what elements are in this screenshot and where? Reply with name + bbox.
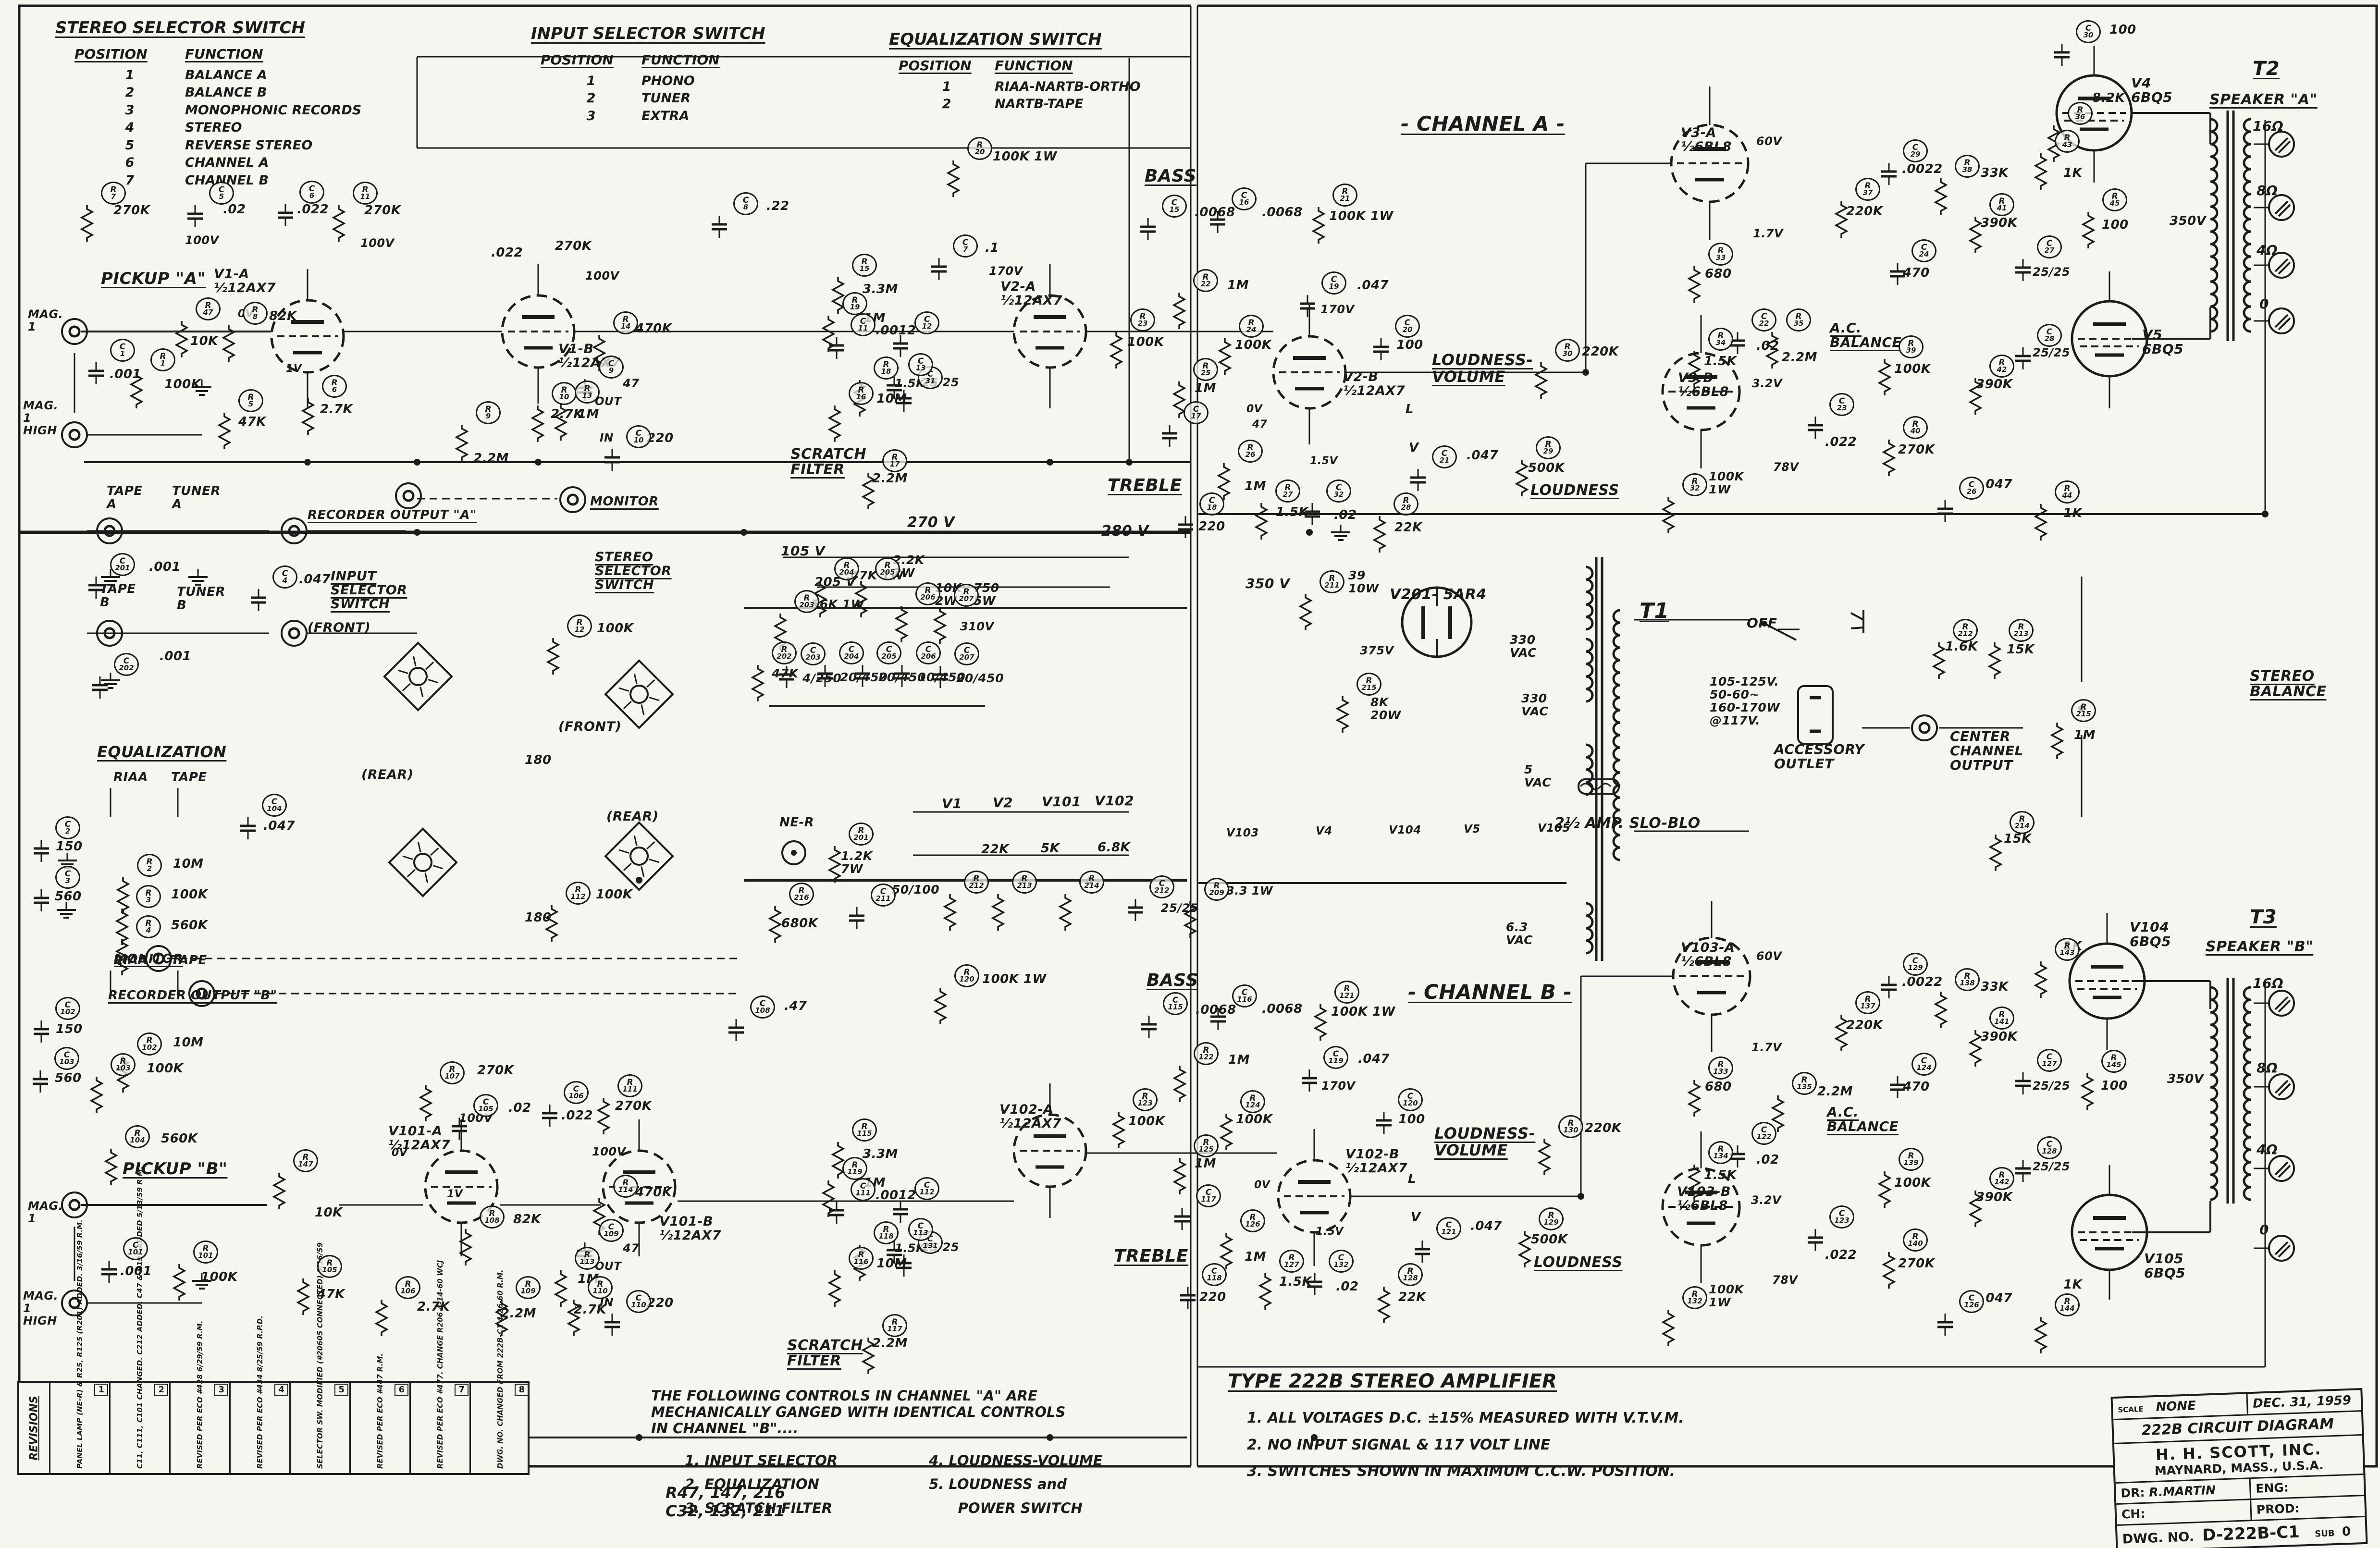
label-c124-val: 470 <box>1903 1080 1930 1093</box>
label-mag1h-b: MAG. 1 HIGH <box>23 1290 58 1327</box>
ref-C28: C28 <box>2037 324 2062 347</box>
glyph <box>1879 1171 1890 1208</box>
label-v104: V104 6BQ5 <box>2130 920 2171 949</box>
ref-R124: R124 <box>1240 1090 1265 1113</box>
wire <box>2279 1000 2290 1012</box>
ref-text: 138 <box>1960 980 1974 987</box>
revision-number: 1 <box>94 1384 108 1396</box>
label-r114-val: 470K <box>635 1186 672 1199</box>
ref-C109: C109 <box>599 1219 624 1242</box>
glyph <box>1836 1015 1847 1051</box>
ref-text: 44 <box>2062 492 2072 499</box>
label-r21-val: 100K 1W <box>1329 209 1393 223</box>
glyph <box>555 1270 566 1307</box>
label-v201: V201- 5AR4 <box>1390 587 1487 602</box>
label-r43-val: 1K <box>2063 166 2082 180</box>
ref-R111: R111 <box>617 1074 642 1097</box>
label-sf-out-b: OUT <box>595 1261 621 1273</box>
ref-R214: R214 <box>1079 871 1104 894</box>
ref-text: 115 <box>857 1130 872 1137</box>
glyph <box>1174 381 1184 418</box>
label-v101b-100v: 100V <box>592 1146 626 1158</box>
glyph <box>91 1077 102 1113</box>
glyph <box>2035 961 2046 998</box>
revision-text: DWG. NO. CHANGED FROM 222B-C1 4-26-60 R.… <box>496 1387 505 1469</box>
ref-C32: C32 <box>1326 479 1351 503</box>
ref-C205: C205 <box>876 641 901 664</box>
ref-text: 204 <box>844 653 859 660</box>
ref-text: 43 <box>2062 142 2072 148</box>
ref-text: 35 <box>1794 320 1804 327</box>
label-c22-val: .02 <box>1756 339 1779 353</box>
label-r201-val: 1.2K 7W <box>841 849 873 875</box>
ref-text: 124 <box>1916 1065 1931 1071</box>
ref-text: 145 <box>2106 1062 2121 1069</box>
junction-dot <box>740 529 747 536</box>
ref-text: 18 <box>881 369 891 375</box>
ref-text: 10 <box>634 437 644 444</box>
glyph <box>1337 696 1348 733</box>
label-r28-val: 22K <box>1394 521 1422 534</box>
glyph <box>174 1264 185 1301</box>
label-c18-val: 220 <box>1198 520 1225 533</box>
ganged-line3: IN CHANNEL "B".... <box>651 1420 1204 1437</box>
equalization-title: EQUALIZATION SWITCH <box>889 30 1187 49</box>
glyph <box>1221 1233 1232 1269</box>
label-tape-a: TAPE A <box>107 484 143 511</box>
switch-table-row: 3EXTRA <box>531 108 781 125</box>
ref-R135: R135 <box>1792 1072 1817 1095</box>
jack-outer <box>396 483 421 508</box>
revision-cell-4: REVISED PER ECO #434 8/25/59 R.P.D.4 <box>231 1383 291 1473</box>
glyph <box>376 1300 387 1336</box>
label-v3a: V3-A ½6BL8 <box>1681 126 1732 154</box>
ref-R215: R215 <box>2071 699 2096 722</box>
revision-text: PANEL LAMP (NE-R) & R25, R125 (R201) ADD… <box>75 1387 84 1469</box>
label-mag1-a: MAG. 1 <box>28 308 63 333</box>
label-r116-val: 10M <box>876 1257 907 1270</box>
glyph <box>823 1180 834 1217</box>
ref-R202: R202 <box>772 641 797 664</box>
label-c3-val: 560 <box>55 890 82 903</box>
ref-text: 120 <box>1403 1100 1418 1107</box>
label-r38-val: 33K <box>1981 166 2009 180</box>
ref-text: 5 <box>248 401 253 408</box>
glyph <box>833 1142 843 1179</box>
stereo-selector-table: STEREO SELECTOR SWITCH POSITION FUNCTION… <box>55 18 392 189</box>
label-tuner-a: TUNER A <box>172 484 221 511</box>
label-c4-val: .047 <box>299 573 331 586</box>
function-cell: BALANCE A <box>185 67 267 84</box>
ref-R134: R134 <box>1708 1141 1733 1164</box>
label-r8-val: 82K <box>269 309 297 323</box>
label-r111-val: 270K <box>615 1099 652 1113</box>
ganged-right-list: 4. LOUDNESS-VOLUME5. LOUDNESS and POWER … <box>929 1449 1102 1520</box>
ref-text: 19 <box>1329 283 1339 290</box>
ganged-line2: MECHANICALLY GANGED WITH IDENTICAL CONTR… <box>651 1404 1204 1420</box>
ref-text: 106 <box>400 1288 415 1295</box>
wire <box>431 848 438 855</box>
label-r42-val: 390K <box>1976 378 2012 391</box>
ref-text: 26 <box>1967 489 1977 495</box>
label-t3-0: 0 <box>2259 1223 2269 1237</box>
revision-number: 7 <box>455 1384 469 1396</box>
revision-cell-7: REVISED PER ECO #477. CHANGE R206 4-14-6… <box>411 1383 471 1473</box>
ref-text: 108 <box>755 1007 770 1014</box>
glyph <box>833 277 843 314</box>
revision-number: 4 <box>274 1384 288 1396</box>
label-c26-val: .047 <box>1981 478 2012 491</box>
ref-R24: R24 <box>1239 315 1264 338</box>
switch-table-row: 1PHONO <box>531 73 781 90</box>
ref-text: 102 <box>142 1044 157 1051</box>
input-selector-title: INPUT SELECTOR SWITCH <box>531 24 781 43</box>
label-r37-val: 220K <box>1846 205 1883 218</box>
label-c16-val: .0068 <box>1262 206 1303 219</box>
label-r127-val: 1.5K <box>1279 1275 1312 1289</box>
glyph <box>2210 119 2217 332</box>
label-c203-val: 4/250 <box>802 672 841 685</box>
ref-R6: R6 <box>322 375 347 398</box>
revision-text: REVISED PER ECO #447 R.M. <box>376 1387 384 1469</box>
ref-R212: R212 <box>1953 619 1978 642</box>
ref-text: 28 <box>2045 336 2055 343</box>
ref-text: 22 <box>1759 320 1769 327</box>
label-r101-val: 100K <box>201 1270 237 1284</box>
label-c120-val: 100 <box>1398 1113 1425 1126</box>
ref-text: 6 <box>332 387 337 393</box>
ref-text: 110 <box>592 1288 607 1295</box>
label-r115-val: 3.3M <box>863 1147 898 1161</box>
label-lv-l-b: L <box>1408 1172 1416 1186</box>
ref-text: 119 <box>847 1169 862 1176</box>
label-loudness-b: LOUDNESS <box>1534 1255 1623 1270</box>
ref-C103: C103 <box>54 1047 79 1070</box>
col-position: POSITION <box>541 52 641 68</box>
ref-text: 206 <box>920 594 935 601</box>
prod-label: PROD: <box>2250 1496 2365 1520</box>
ref-text: 216 <box>794 895 809 901</box>
label-v102b-15v: 1.5V <box>1316 1226 1344 1238</box>
position-cell: 4 <box>74 119 185 136</box>
label-rail-350: 350 V <box>1245 577 1290 591</box>
ref-text: 5 <box>219 194 224 200</box>
ref-text: 111 <box>855 1190 870 1197</box>
label-c8-val: .22 <box>766 199 789 213</box>
ref-C122: C122 <box>1751 1122 1776 1145</box>
glyph <box>118 877 128 914</box>
ref-C15: C15 <box>1162 195 1187 218</box>
ref-R15: R15 <box>852 254 877 277</box>
ref-C26: C26 <box>1959 477 1984 500</box>
label-r-v1b-val: 270K <box>555 239 592 253</box>
ref-text: 127 <box>2042 1061 2057 1068</box>
ref-R105: R105 <box>317 1255 342 1278</box>
ref-C112: C112 <box>914 1177 939 1200</box>
label-r142-val: 390K <box>1976 1191 2012 1204</box>
ref-text: 119 <box>1328 1058 1343 1065</box>
label-lv-l-a: L <box>1406 403 1414 416</box>
ref-R39: R39 <box>1899 335 1924 358</box>
ref-text: 32 <box>1690 485 1700 492</box>
ref-text: 131 <box>923 1243 937 1250</box>
ref-text: 14 <box>621 323 631 330</box>
ref-text: 6 <box>309 193 314 199</box>
ref-C204: C204 <box>839 641 864 664</box>
ref-C2: C2 <box>55 816 80 839</box>
ref-R204: R204 <box>834 557 859 580</box>
label-r30-val: 220K <box>1582 345 1618 358</box>
ref-R126: R126 <box>1240 1209 1265 1232</box>
wire <box>403 684 410 691</box>
ref-C101: C101 <box>123 1237 148 1260</box>
label-t1-330b: 330 VAC <box>1521 692 1548 718</box>
ref-text: 20 <box>975 149 985 156</box>
label-riaa-b: RIAA <box>113 954 148 967</box>
ref-R109: R109 <box>516 1276 541 1299</box>
junction-dot <box>414 459 420 466</box>
label-pickup-a: PICKUP "A" <box>101 270 206 288</box>
ref-C121: C121 <box>1436 1217 1461 1240</box>
ref-C27: C27 <box>2037 235 2062 258</box>
ref-R118: R118 <box>874 1221 899 1244</box>
ref-C16: C16 <box>1232 187 1257 210</box>
ref-C1: C1 <box>110 339 135 362</box>
label-c119-val: .047 <box>1358 1052 1390 1066</box>
label-r33-val: 680 <box>1705 267 1732 281</box>
ref-C207: C207 <box>954 642 979 665</box>
switch-table-row: 4STEREO <box>55 119 392 136</box>
ref-text: 124 <box>1245 1102 1260 1109</box>
label-channel-a: - CHANNEL A - <box>1401 113 1565 135</box>
glyph <box>823 316 834 352</box>
label-v2b-0v: 0V <box>1246 404 1262 415</box>
position-cell: 2 <box>541 90 641 107</box>
revision-cell-6: REVISED PER ECO #447 R.M.6 <box>351 1383 411 1473</box>
col-position: POSITION <box>74 46 185 62</box>
ref-C115: C115 <box>1163 992 1188 1015</box>
label-r102-val: 10M <box>173 1036 204 1049</box>
ref-text: 113 <box>913 1230 928 1237</box>
ref-text: 38 <box>1962 167 1973 173</box>
ref-C11: C11 <box>851 313 876 336</box>
ref-text: 37 <box>1863 190 1873 197</box>
wire <box>420 687 423 697</box>
ref-C102: C102 <box>55 997 80 1020</box>
revision-cell-3: REVISED PER ECO #428 6/29/59 R.M.3 <box>171 1383 231 1473</box>
ref-text: 114 <box>618 1187 633 1193</box>
glyph <box>1970 217 1981 253</box>
label-off: OFF <box>1747 616 1777 630</box>
label-r35-val: 2.2M <box>1782 351 1817 364</box>
ref-text: 116 <box>1237 996 1252 1003</box>
switch-table-row: 2BALANCE B <box>55 84 392 101</box>
label-c106-val: .022 <box>561 1109 593 1122</box>
label-v2a-170v: 170V <box>989 265 1023 278</box>
glyph <box>1536 362 1546 399</box>
glyph <box>2035 153 2046 190</box>
glyph <box>935 607 945 644</box>
ref-text: 112 <box>919 1189 934 1196</box>
ref-text: 8 <box>743 204 748 211</box>
glyph <box>1663 1310 1674 1346</box>
switch-table-row: 3MONOPHONIC RECORDS <box>55 102 392 119</box>
dwg-label: DWG. NO. <box>2122 1529 2194 1547</box>
label-c108-val: .47 <box>784 999 807 1013</box>
glyph <box>829 405 840 442</box>
ref-text: 45 <box>2110 200 2120 207</box>
wire <box>407 870 415 877</box>
jack-outer <box>282 621 307 646</box>
jack-inner <box>289 628 299 638</box>
ref-C105: C105 <box>473 1094 498 1117</box>
ref-R9: R9 <box>476 401 501 424</box>
label-c30-val: 100 <box>2109 23 2136 37</box>
label-r107-val: 270K <box>477 1064 514 1077</box>
ref-text: 23 <box>1837 405 1847 412</box>
label-c103-val: 560 <box>55 1071 82 1085</box>
label-t2-8: 8Ω <box>2257 184 2278 198</box>
wire <box>641 866 644 876</box>
label-r139-val: 100K <box>1894 1176 1931 1190</box>
label-c28-val: 25/25 <box>2033 347 2070 359</box>
wire <box>403 856 413 860</box>
revision-cell-8: DWG. NO. CHANGED FROM 222B-C1 4-26-60 R.… <box>471 1383 530 1473</box>
ref-R47: R47 <box>196 297 221 320</box>
label-htr-v103: V103 <box>1226 827 1259 839</box>
label-mag1-b: MAG. 1 <box>28 1200 63 1225</box>
glyph <box>1060 894 1071 931</box>
label-input-selector-switch: INPUT SELECTOR SWITCH <box>331 569 407 611</box>
label-r130-val: 220K <box>1585 1121 1621 1135</box>
wire <box>624 701 631 709</box>
label-r45-val: 100 <box>2102 218 2129 232</box>
label-r108-val: 82K <box>513 1213 541 1226</box>
ref-C12: C12 <box>914 311 939 334</box>
ref-C212: C212 <box>1149 875 1174 898</box>
label-stereo-front: (FRONT) <box>558 720 621 734</box>
ref-text: 203 <box>805 654 820 661</box>
ref-R23: R23 <box>1130 308 1155 332</box>
ref-C201: C201 <box>110 553 135 576</box>
glyph <box>456 425 467 461</box>
label-v103a-17v: 1.7V <box>1751 1042 1782 1054</box>
label-c7-val: .1 <box>985 241 999 255</box>
ref-text: 214 <box>1084 883 1099 889</box>
ref-text: 133 <box>1713 1069 1728 1075</box>
ref-C129: C129 <box>1903 953 1928 976</box>
label-r215-val: 1M <box>2074 728 2096 742</box>
label-r24-val: 100K <box>1235 338 1271 352</box>
ref-text: 103 <box>115 1065 130 1072</box>
label-htr-v104: V104 <box>1389 824 1421 836</box>
revision-number: 3 <box>214 1384 228 1396</box>
label-v105: V105 6BQ5 <box>2144 1252 2185 1280</box>
label-v103b: V103-B ½6BL8 <box>1677 1185 1731 1213</box>
ref-text: 139 <box>1903 1160 1918 1167</box>
wire <box>2275 1081 2288 1093</box>
ref-C9: C9 <box>599 356 624 379</box>
ref-text: 4 <box>283 577 287 584</box>
ref-C19: C19 <box>1321 271 1346 295</box>
label-v103b-32v: 3.2V <box>1751 1194 1781 1207</box>
label-r145-val: 100 <box>2101 1079 2128 1093</box>
ref-text: 113 <box>580 1259 594 1265</box>
glyph <box>333 205 344 242</box>
ref-text: 17 <box>1191 413 1201 420</box>
wire <box>433 866 443 869</box>
ref-C117: C117 <box>1196 1184 1221 1207</box>
label-c15-val: .0068 <box>1195 206 1235 219</box>
glyph <box>1260 1273 1270 1310</box>
ref-text: 141 <box>1994 1019 2009 1025</box>
function-cell: TUNER <box>641 90 691 107</box>
label-pickup-b: PICKUP "B" <box>123 1160 227 1178</box>
label-c1-val: .001 <box>110 368 141 381</box>
ref-text: 11 <box>858 325 868 332</box>
ref-R122: R122 <box>1194 1042 1219 1065</box>
ref-text: 105 <box>322 1267 337 1274</box>
ref-R17: R17 <box>882 449 907 472</box>
ref-R35: R35 <box>1786 308 1811 332</box>
col-function: FUNCTION <box>641 52 720 68</box>
label-c9-val: 47 <box>623 378 639 390</box>
glyph <box>1174 1158 1185 1194</box>
glyph <box>1221 1114 1232 1150</box>
ref-R211: R211 <box>1319 570 1344 593</box>
label-v1a-plate-v: 100V <box>185 234 219 247</box>
ref-R203: R203 <box>794 590 819 613</box>
label-r-180a: 180 <box>525 753 552 767</box>
label-c122-val: .02 <box>1756 1153 1779 1167</box>
ref-text: 32 <box>1334 491 1344 498</box>
ref-R104: R104 <box>125 1125 150 1148</box>
ref-C119: C119 <box>1323 1046 1348 1069</box>
ref-R36: R36 <box>2068 102 2093 125</box>
wafer-hub <box>409 668 427 685</box>
ref-text: 206 <box>921 653 936 660</box>
ref-R8: R8 <box>243 302 268 325</box>
glyph <box>1539 1139 1550 1175</box>
label-r216-val: 680K <box>781 917 818 930</box>
glyph <box>896 606 907 642</box>
glyph <box>1936 178 1946 215</box>
glyph <box>1174 293 1184 329</box>
revisions-label: REVISIONS <box>28 1396 40 1460</box>
function-cell: EXTRA <box>641 108 689 125</box>
label-stereo-balance: STEREO BALANCE <box>2250 669 2327 700</box>
ref-R113: R113 <box>575 1247 600 1270</box>
ref-R112: R112 <box>566 882 591 905</box>
ref-text: 7 <box>111 194 116 200</box>
glyph <box>1256 503 1267 540</box>
function-cell: STEREO <box>185 119 242 136</box>
label-r29-val: 500K <box>1528 461 1565 475</box>
label-t1-330a: 330 VAC <box>1510 633 1537 659</box>
label-r40-val: 270K <box>1898 443 1935 456</box>
ref-text: 205 <box>880 569 895 576</box>
glyph <box>2244 119 2251 332</box>
glyph <box>1220 338 1230 375</box>
wire <box>647 842 654 849</box>
switch-table-row: 1BALANCE A <box>55 67 392 84</box>
amp-notes: TYPE 222B STEREO AMPLIFIER 1. ALL VOLTAG… <box>1228 1370 1828 1485</box>
function-cell: BALANCE B <box>185 84 267 101</box>
label-tuner-b: TUNER B <box>177 585 225 612</box>
label-input-front: (FRONT) <box>308 621 370 635</box>
label-t2-350v: 350V <box>2170 214 2206 228</box>
col-position: POSITION <box>899 58 995 74</box>
